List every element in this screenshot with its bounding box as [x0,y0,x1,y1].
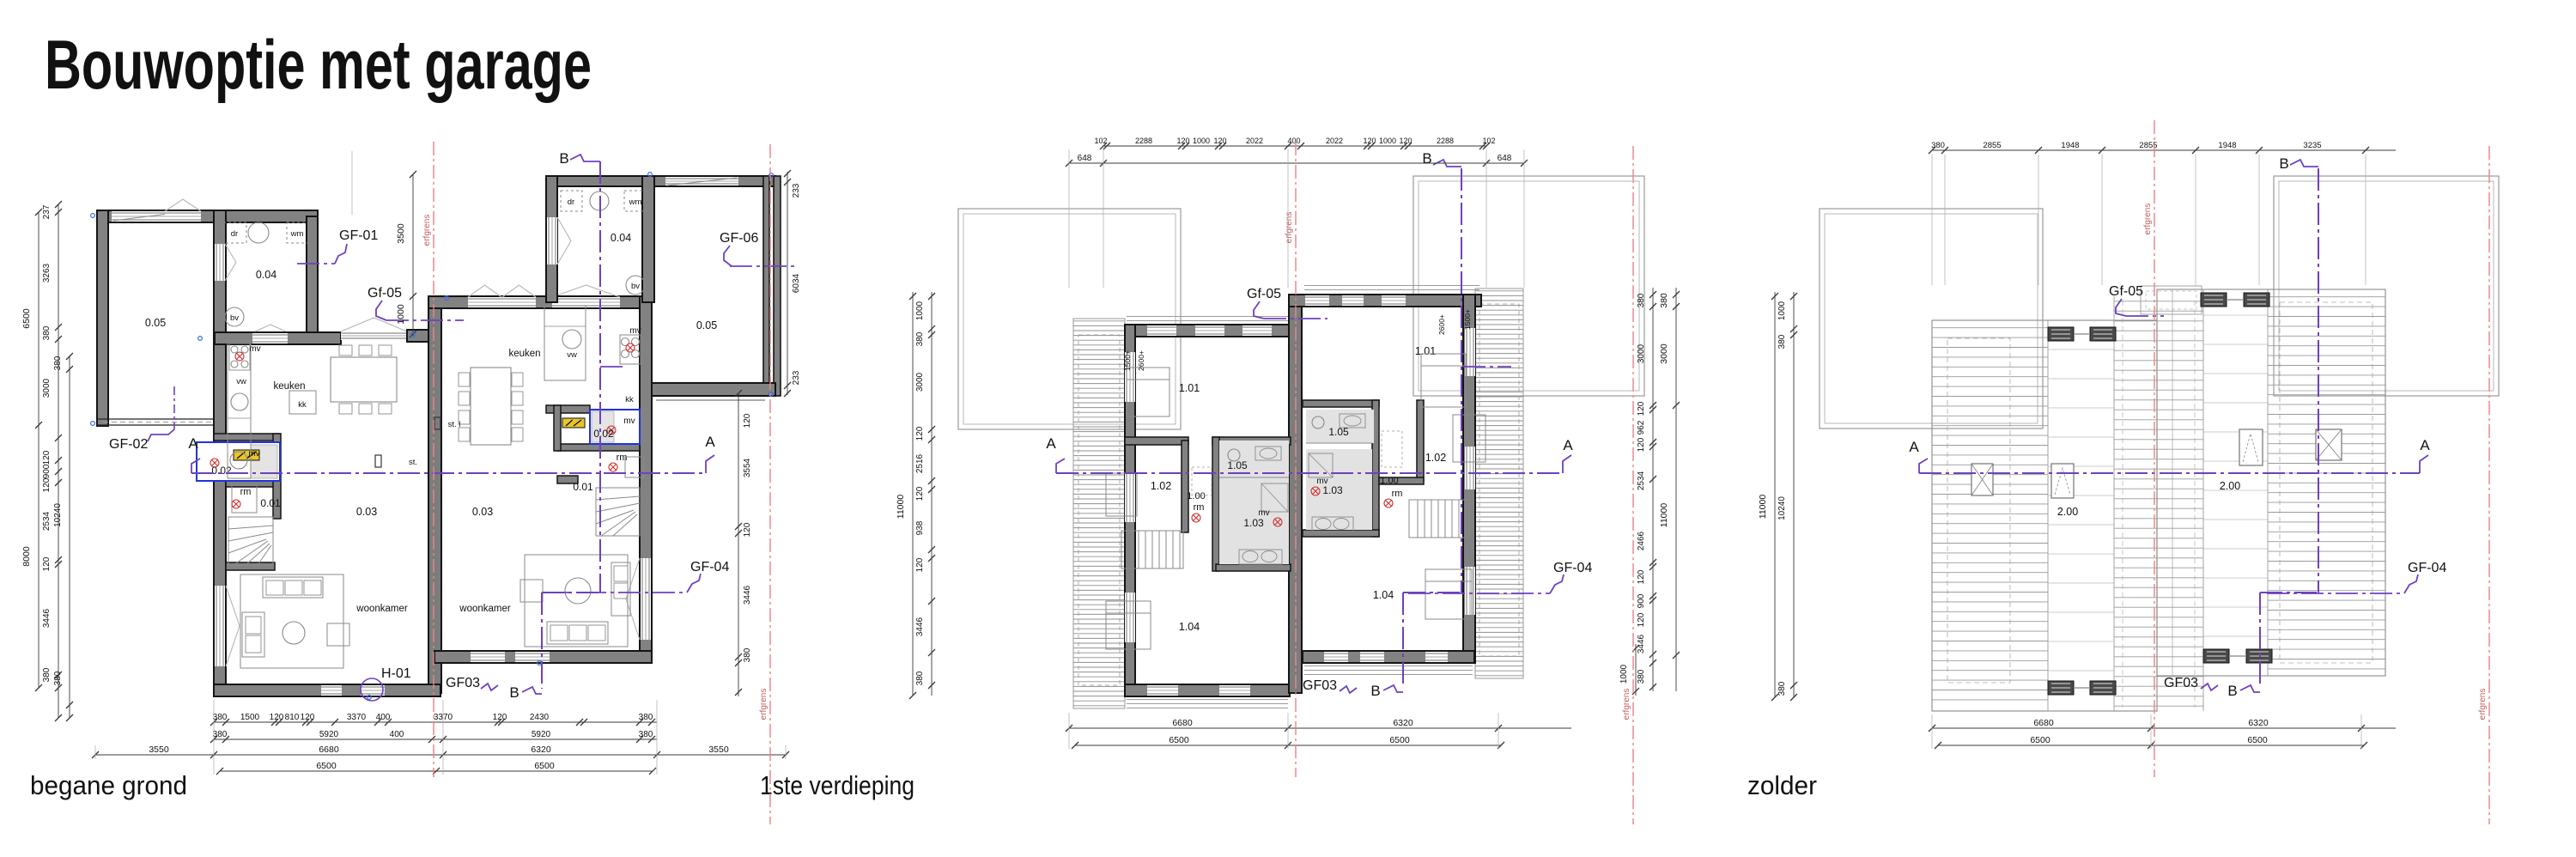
svg-text:8000: 8000 [21,546,32,567]
svg-text:6500: 6500 [21,308,32,329]
svg-text:1.04: 1.04 [1373,589,1394,601]
svg-text:0.01: 0.01 [573,481,593,493]
svg-text:6320: 6320 [1393,718,1413,728]
svg-text:6500: 6500 [1389,735,1410,745]
svg-text:2.00: 2.00 [2057,506,2078,518]
svg-text:380: 380 [639,713,653,722]
svg-text:0.04: 0.04 [256,269,276,281]
svg-text:2516: 2516 [915,453,925,473]
svg-text:0.05: 0.05 [696,319,717,331]
svg-text:120: 120 [1363,137,1376,145]
svg-text:400: 400 [1287,137,1300,145]
svg-text:1.02: 1.02 [1151,480,1171,492]
svg-text:120: 120 [1176,137,1189,145]
svg-text:380: 380 [639,730,653,739]
svg-text:keuken: keuken [508,349,540,359]
svg-text:380: 380 [743,647,752,662]
svg-text:2430: 2430 [530,713,550,722]
svg-text:GF-02: GF-02 [109,437,148,452]
svg-text:380: 380 [42,667,52,682]
svg-text:2288: 2288 [1437,137,1454,145]
svg-text:bv: bv [230,313,239,323]
svg-text:6680: 6680 [1172,718,1193,728]
svg-text:1.05: 1.05 [1227,459,1248,471]
svg-text:380: 380 [1637,293,1646,307]
svg-text:B: B [2279,155,2288,172]
svg-text:11000: 11000 [1758,495,1768,520]
svg-text:rm: rm [1194,502,1205,513]
svg-text:erfgrens: erfgrens [759,689,769,720]
svg-text:woonkamer: woonkamer [459,604,511,614]
svg-text:120: 120 [42,477,52,492]
svg-text:10240: 10240 [53,503,63,527]
svg-text:648: 648 [1498,154,1512,163]
svg-text:120: 120 [301,713,315,722]
svg-text:380: 380 [1777,681,1787,696]
svg-text:0.03: 0.03 [356,506,377,518]
svg-text:3446: 3446 [743,585,752,605]
svg-text:Gf-05: Gf-05 [2109,284,2143,299]
svg-text:GF03: GF03 [446,676,480,690]
svg-text:3554: 3554 [743,458,752,477]
svg-text:10240: 10240 [1777,496,1787,520]
svg-text:5920: 5920 [532,730,551,739]
svg-text:st. l: st. l [448,420,461,429]
svg-text:2.00: 2.00 [2220,480,2240,492]
svg-text:2534: 2534 [42,511,52,531]
svg-text:H-01: H-01 [381,666,411,681]
svg-text:6034: 6034 [792,273,801,293]
svg-text:0.05: 0.05 [145,317,166,329]
svg-text:6680: 6680 [319,745,339,755]
svg-text:962: 962 [1637,420,1646,435]
svg-text:11000: 11000 [896,495,906,520]
svg-text:120: 120 [1637,569,1646,584]
svg-text:938: 938 [915,520,925,535]
svg-text:begane grond: begane grond [30,770,187,800]
svg-text:2022: 2022 [1246,137,1263,145]
svg-text:3550: 3550 [708,745,729,755]
svg-text:380: 380 [213,713,228,722]
svg-text:GF-04: GF-04 [1553,561,1592,575]
svg-text:3370: 3370 [347,713,367,722]
svg-text:Gf-05: Gf-05 [1247,287,1281,301]
svg-text:120: 120 [1637,401,1646,416]
svg-text:233: 233 [792,370,801,385]
svg-text:380: 380 [42,325,52,340]
svg-text:GF-04: GF-04 [2408,561,2446,575]
svg-text:A: A [1909,439,1919,455]
svg-text:6500: 6500 [2030,735,2050,745]
svg-text:1.01: 1.01 [1415,345,1436,357]
svg-text:vw: vw [236,377,246,386]
svg-text:0.02: 0.02 [593,428,614,440]
svg-text:1.03: 1.03 [1243,517,1264,529]
svg-text:1.02: 1.02 [1425,452,1446,464]
svg-text:6500: 6500 [2247,735,2268,745]
svg-text:wm: wm [290,229,304,239]
svg-text:0.01: 0.01 [260,497,281,509]
svg-text:1500+: 1500+ [1123,350,1132,371]
svg-text:3000: 3000 [1637,343,1646,363]
svg-text:237: 237 [42,204,52,219]
svg-text:3000: 3000 [915,372,925,392]
svg-text:Bouwoptie met garage: Bouwoptie met garage [45,27,592,104]
svg-text:102: 102 [1482,137,1495,145]
svg-text:1500: 1500 [240,713,260,722]
svg-text:120: 120 [42,556,52,571]
svg-text:2855: 2855 [1983,141,2001,150]
svg-text:B: B [559,150,568,167]
svg-text:120: 120 [1637,437,1646,452]
svg-text:11000: 11000 [1659,503,1669,528]
svg-text:3446: 3446 [915,617,925,636]
svg-text:1.05: 1.05 [1328,426,1349,438]
svg-text:900: 900 [1637,593,1646,608]
svg-text:1000: 1000 [915,301,925,320]
svg-text:120: 120 [743,522,752,537]
svg-text:B: B [1370,683,1380,699]
svg-text:1000: 1000 [1379,137,1396,145]
svg-text:A: A [705,434,715,450]
svg-text:380: 380 [915,671,925,685]
svg-text:mv: mv [623,416,635,426]
svg-text:6500: 6500 [1169,735,1189,745]
svg-text:erfgrens: erfgrens [1622,689,1631,720]
svg-text:120: 120 [270,713,284,722]
svg-text:keuken: keuken [273,381,305,392]
svg-text:3500: 3500 [396,223,406,244]
svg-text:mv: mv [249,344,260,354]
svg-text:vw: vw [567,350,577,360]
svg-text:A: A [2420,437,2430,453]
svg-text:6320: 6320 [531,745,551,755]
svg-text:648: 648 [1078,154,1092,163]
svg-text:3263: 3263 [42,263,52,283]
svg-text:2600+: 2600+ [1137,350,1145,371]
svg-text:380: 380 [53,356,63,370]
svg-text:rm: rm [240,487,252,497]
svg-text:380: 380 [1637,669,1646,684]
svg-text:900: 900 [42,464,52,478]
svg-text:810: 810 [285,713,300,722]
svg-text:400: 400 [390,730,404,739]
svg-text:120: 120 [1213,137,1226,145]
svg-text:120: 120 [42,450,52,465]
svg-text:400: 400 [376,713,391,722]
svg-text:kk: kk [625,395,634,404]
svg-text:kk: kk [298,400,307,410]
svg-text:B: B [509,684,519,701]
svg-text:380: 380 [213,730,228,739]
svg-text:1500+: 1500+ [1463,309,1472,330]
svg-text:120: 120 [915,486,925,501]
svg-text:5920: 5920 [319,730,339,739]
svg-text:GF03: GF03 [1303,678,1337,693]
svg-text:120: 120 [915,557,925,572]
svg-text:1.00: 1.00 [1380,476,1398,486]
svg-text:A: A [1563,437,1573,453]
svg-text:woonkamer: woonkamer [355,604,408,614]
svg-text:2600+: 2600+ [1437,314,1446,335]
svg-text:GF03: GF03 [2164,676,2198,690]
svg-text:3235: 3235 [2303,141,2321,150]
svg-text:GF-06: GF-06 [720,231,758,246]
svg-text:1000: 1000 [1619,664,1629,684]
svg-text:1.04: 1.04 [1179,621,1200,633]
svg-text:erfgrens: erfgrens [1285,212,1294,244]
svg-text:2534: 2534 [1637,471,1646,490]
svg-text:st.: st. [409,458,417,467]
svg-text:6500: 6500 [534,761,555,771]
svg-text:1.01: 1.01 [1179,382,1200,394]
svg-text:erfgrens: erfgrens [422,215,432,246]
svg-text:wm: wm [629,198,642,207]
svg-text:dr: dr [231,229,238,239]
svg-text:2022: 2022 [1326,137,1343,145]
svg-text:1948: 1948 [2218,141,2236,150]
svg-text:A: A [188,435,198,452]
svg-text:2288: 2288 [1135,137,1152,145]
svg-text:3000: 3000 [42,378,52,398]
svg-text:B: B [1422,150,1431,167]
svg-text:6320: 6320 [2248,718,2269,728]
svg-text:380: 380 [1931,141,1945,150]
svg-text:120: 120 [1637,612,1646,627]
svg-text:bv: bv [631,282,640,291]
svg-text:233: 233 [792,183,801,198]
svg-text:380: 380 [1659,293,1669,308]
svg-text:380: 380 [53,671,63,685]
svg-text:1ste verdieping: 1ste verdieping [760,770,914,800]
svg-text:0.03: 0.03 [472,506,493,518]
svg-text:3000: 3000 [1659,343,1669,364]
svg-text:mv: mv [248,449,259,459]
svg-text:120: 120 [493,713,507,722]
svg-text:erfgrens: erfgrens [2478,689,2488,720]
svg-text:0.04: 0.04 [611,232,631,244]
svg-text:1948: 1948 [2061,141,2079,150]
svg-text:3446: 3446 [42,608,52,628]
svg-text:102: 102 [1094,137,1107,145]
svg-text:3446: 3446 [1637,634,1646,653]
svg-text:1.00: 1.00 [1187,491,1205,501]
svg-text:mv: mv [629,326,641,336]
svg-text:A: A [1046,435,1056,452]
svg-text:GF-01: GF-01 [339,228,378,243]
svg-text:3550: 3550 [149,745,169,755]
svg-text:6500: 6500 [316,761,337,771]
svg-text:1000: 1000 [1193,137,1210,145]
svg-text:120: 120 [1399,137,1412,145]
svg-text:120: 120 [743,413,752,428]
svg-text:2466: 2466 [1637,531,1646,550]
svg-text:B: B [2227,683,2237,699]
svg-text:1000: 1000 [1777,301,1787,320]
svg-text:380: 380 [1777,334,1787,349]
svg-text:Gf-05: Gf-05 [368,286,402,301]
svg-text:6680: 6680 [2033,718,2054,728]
svg-text:dr: dr [568,198,574,207]
svg-text:380: 380 [915,331,925,346]
svg-text:zolder: zolder [1747,770,1817,800]
svg-text:1000: 1000 [396,304,406,325]
svg-text:0.02: 0.02 [211,465,232,477]
svg-text:erfgrens: erfgrens [2143,204,2153,235]
svg-text:GF-04: GF-04 [690,560,729,574]
svg-text:rm: rm [1392,489,1403,499]
svg-text:1.03: 1.03 [1322,484,1343,496]
svg-text:120: 120 [915,426,925,441]
